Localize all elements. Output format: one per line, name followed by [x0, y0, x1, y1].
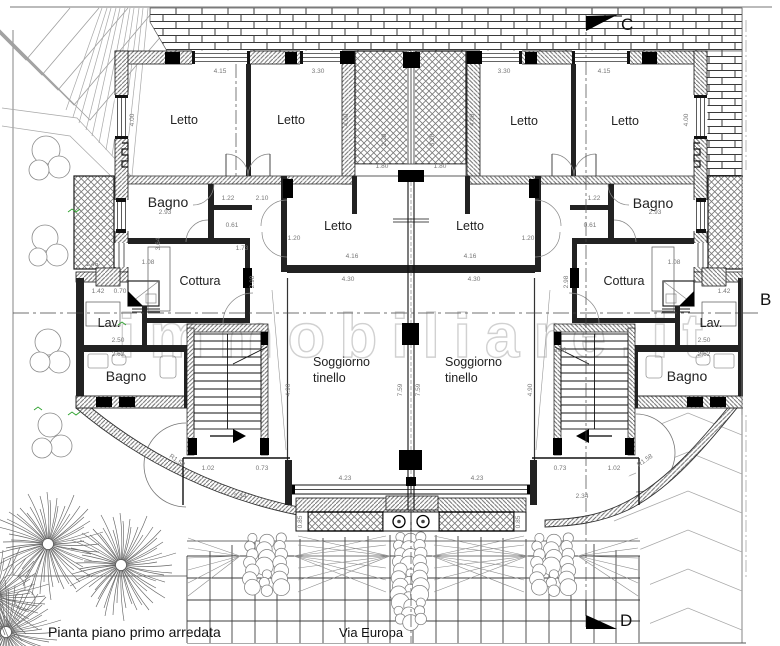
svg-text:1.02: 1.02	[608, 465, 621, 472]
svg-text:1.45: 1.45	[86, 261, 99, 268]
svg-text:Bagno: Bagno	[148, 194, 189, 210]
svg-text:4.16: 4.16	[346, 253, 359, 260]
svg-text:D: D	[620, 611, 632, 630]
svg-text:2.62: 2.62	[112, 351, 125, 358]
svg-text:C: C	[621, 15, 633, 34]
svg-text:Cottura: Cottura	[604, 274, 645, 288]
svg-text:2.50: 2.50	[698, 337, 711, 344]
svg-text:1.73: 1.73	[236, 245, 249, 252]
svg-text:2.98: 2.98	[249, 275, 256, 288]
svg-text:8.50: 8.50	[554, 347, 567, 354]
svg-text:2.62: 2.62	[698, 351, 711, 358]
svg-text:0.85: 0.85	[297, 515, 304, 528]
svg-text:4.15: 4.15	[598, 68, 611, 75]
svg-text:Letto: Letto	[324, 219, 352, 233]
svg-text:1.08: 1.08	[668, 259, 681, 266]
svg-text:1.02: 1.02	[202, 465, 215, 472]
svg-text:Letto: Letto	[277, 113, 305, 127]
svg-text:4.00: 4.00	[469, 113, 476, 126]
svg-text:0.73: 0.73	[256, 465, 269, 472]
svg-text:2.93: 2.93	[159, 209, 172, 216]
svg-text:Bagno: Bagno	[106, 368, 147, 384]
svg-text:1.22: 1.22	[588, 195, 601, 202]
svg-text:tinello: tinello	[445, 371, 478, 385]
svg-text:7.59: 7.59	[397, 383, 404, 396]
svg-text:0.85: 0.85	[515, 515, 522, 528]
svg-text:Bagno: Bagno	[667, 368, 708, 384]
svg-text:3.30: 3.30	[498, 68, 511, 75]
svg-text:0.70: 0.70	[114, 288, 127, 295]
svg-text:2.34: 2.34	[576, 493, 589, 500]
svg-text:tinello: tinello	[313, 371, 346, 385]
svg-text:Soggiorno: Soggiorno	[313, 355, 370, 369]
svg-text:4.00: 4.00	[343, 113, 350, 126]
svg-text:3.64: 3.64	[155, 237, 162, 250]
svg-text:1.80: 1.80	[376, 163, 389, 170]
svg-text:4.15: 4.15	[214, 68, 227, 75]
svg-text:Pianta piano primo arredata: Pianta piano primo arredata	[48, 624, 221, 640]
svg-text:B: B	[760, 290, 771, 309]
svg-text:7.59: 7.59	[415, 383, 422, 396]
svg-text:Letto: Letto	[611, 114, 639, 128]
svg-text:4.00: 4.00	[129, 113, 136, 126]
svg-text:4.90: 4.90	[527, 383, 534, 396]
svg-text:4.30: 4.30	[468, 276, 481, 283]
svg-text:Lav.: Lav.	[700, 316, 723, 330]
svg-text:0.73: 0.73	[554, 465, 567, 472]
svg-text:2.10: 2.10	[256, 195, 269, 202]
svg-text:4.23: 4.23	[339, 475, 352, 482]
svg-text:0.61: 0.61	[584, 222, 597, 229]
svg-text:4.90: 4.90	[285, 383, 292, 396]
svg-text:2.34: 2.34	[234, 493, 247, 500]
svg-text:Letto: Letto	[510, 114, 538, 128]
svg-text:1.22: 1.22	[222, 195, 235, 202]
svg-text:Soggiorno: Soggiorno	[445, 355, 502, 369]
svg-text:1.20: 1.20	[522, 235, 535, 242]
svg-text:2.98: 2.98	[563, 275, 570, 288]
svg-text:3.28: 3.28	[429, 133, 436, 146]
svg-text:0.61: 0.61	[226, 222, 239, 229]
svg-text:2.28: 2.28	[381, 133, 388, 146]
svg-text:4.00: 4.00	[683, 113, 690, 126]
svg-text:Letto: Letto	[170, 113, 198, 127]
svg-text:1.20: 1.20	[288, 235, 301, 242]
svg-text:Lav.: Lav.	[98, 316, 121, 330]
svg-text:1.08: 1.08	[142, 259, 155, 266]
svg-text:4.23: 4.23	[471, 475, 484, 482]
svg-text:4.16: 4.16	[464, 253, 477, 260]
svg-text:4.30: 4.30	[342, 276, 355, 283]
svg-text:Letto: Letto	[456, 219, 484, 233]
svg-text:1.80: 1.80	[434, 163, 447, 170]
svg-text:2.50: 2.50	[112, 337, 125, 344]
svg-text:Cottura: Cottura	[180, 274, 221, 288]
svg-text:1.42: 1.42	[92, 288, 105, 295]
svg-text:Via Europa: Via Europa	[339, 625, 404, 640]
svg-text:1.42: 1.42	[718, 288, 731, 295]
svg-text:3.30: 3.30	[312, 68, 325, 75]
svg-text:2.93: 2.93	[649, 209, 662, 216]
